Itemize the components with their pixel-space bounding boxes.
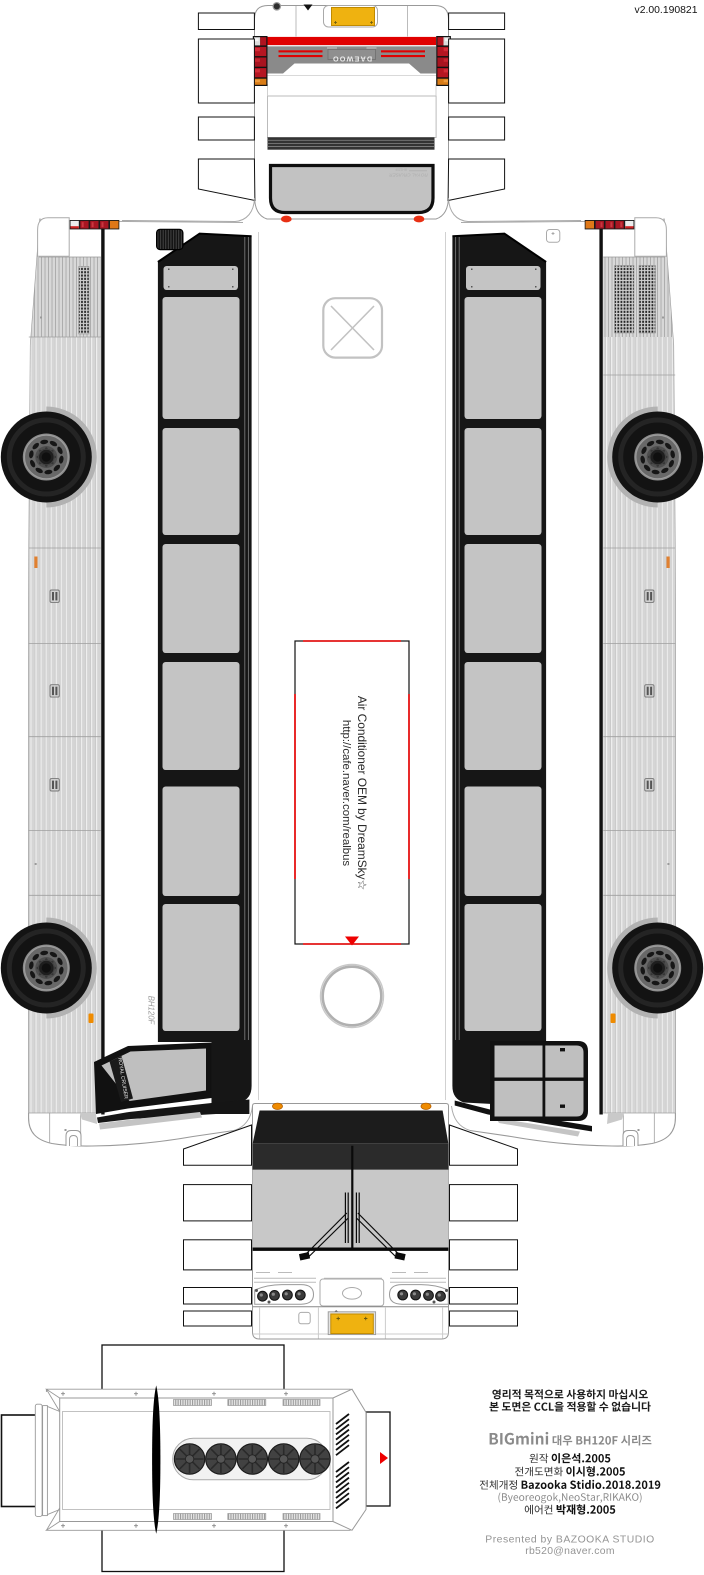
svg-text:http://cafe.naver.com/realbus: http://cafe.naver.com/realbus [340,720,352,867]
svg-text:BH120F: BH120F [147,996,156,1026]
svg-text:BH120F: BH120F [395,168,407,172]
svg-text:Air Conditioner OEM by DreamSk: Air Conditioner OEM by DreamSky☆ [355,696,369,890]
svg-text:rb520@naver.com: rb520@naver.com [525,1546,615,1557]
svg-text:v2.00.190821: v2.00.190821 [635,5,698,16]
svg-text:ROYAL CRUISER: ROYAL CRUISER [389,172,428,178]
svg-text:Presented by BAZOOKA STUDIO: Presented by BAZOOKA STUDIO [485,1535,654,1546]
svg-text:DAEWOO: DAEWOO [332,54,372,63]
